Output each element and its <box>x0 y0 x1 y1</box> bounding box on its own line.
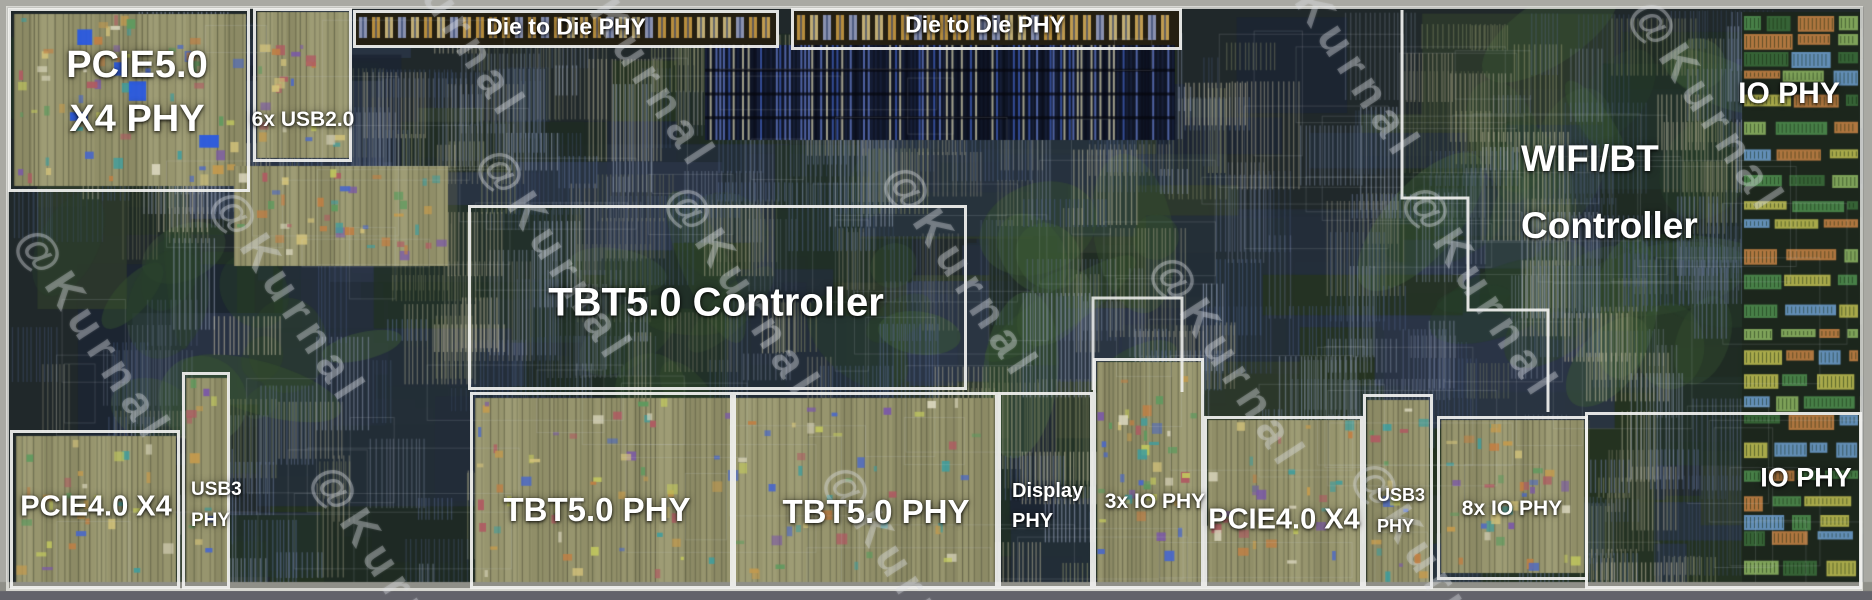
label-tbt5-phy-left: TBT5.0 PHY <box>503 491 690 529</box>
label-usb3-phy-right: USB3 PHY <box>1377 480 1425 541</box>
label-usb3-phy-left: USB3 PHY <box>191 474 242 537</box>
label-line: WIFI/BT <box>1521 126 1698 193</box>
label-line: PHY <box>1377 511 1425 542</box>
label-die-to-die-phy-2: Die to Die PHY <box>905 12 1065 39</box>
label-8x-io-phy: 8x IO PHY <box>1462 497 1562 521</box>
label-wifi-bt-controller: WIFI/BT Controller <box>1521 126 1698 259</box>
label-line: Display <box>1012 476 1083 506</box>
label-3x-io-phy: 3x IO PHY <box>1105 490 1205 514</box>
annotated-die-shot: @Kurnal @Kurnal @Kurnal @Kurnal @Kurnal … <box>0 0 1872 600</box>
label-line: PCIE5.0 <box>66 39 208 93</box>
label-pcie5-x4-phy: PCIE5.0 X4 PHY <box>66 39 208 147</box>
label-line: Controller <box>1521 193 1698 260</box>
label-pcie4-x4-right: PCIE4.0 X4 <box>1208 504 1360 537</box>
label-tbt5-controller: TBT5.0 Controller <box>548 281 884 326</box>
label-line: PHY <box>191 505 242 536</box>
label-line: PHY <box>1012 506 1083 536</box>
label-die-to-die-phy-1: Die to Die PHY <box>486 14 646 41</box>
label-io-phy-top-right: IO PHY <box>1738 77 1840 111</box>
label-display-phy: Display PHY <box>1012 476 1083 536</box>
label-pcie4-x4-left: PCIE4.0 X4 <box>20 491 172 524</box>
label-tbt5-phy-right: TBT5.0 PHY <box>782 493 969 531</box>
label-line: USB3 <box>191 474 242 505</box>
label-6x-usb2: 6x USB2.0 <box>252 108 355 132</box>
label-line: X4 PHY <box>66 93 208 147</box>
label-line: USB3 <box>1377 480 1425 511</box>
label-io-phy-bottom-right: IO PHY <box>1760 463 1852 494</box>
